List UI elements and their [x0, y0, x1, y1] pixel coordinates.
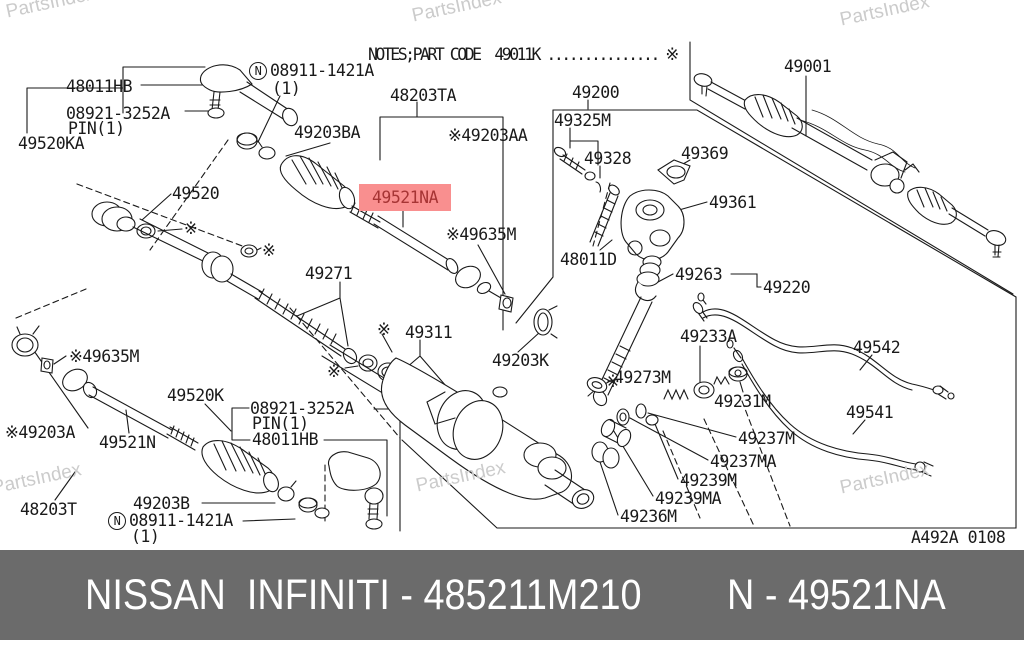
part-label-49239ma: 49239MA [655, 490, 721, 508]
part-label-49220: 49220 [763, 279, 810, 297]
part-label-49263: 49263 [675, 266, 722, 284]
part-label-49271: 49271 [305, 265, 352, 283]
part-label-49233a: 49233A [680, 328, 737, 346]
part-label-49520: 49520 [172, 185, 219, 203]
part-label-49273m: 49273M [614, 369, 671, 387]
part-label-text: 08911-1421A [270, 61, 374, 80]
part-label-49203a: ※49203A [5, 424, 75, 442]
asterisk-mark: ※ [606, 373, 619, 391]
part-label-48011d: 48011D [560, 251, 617, 269]
part-label-49369: 49369 [681, 145, 728, 163]
part-label-49328: 49328 [584, 150, 631, 168]
part-label-08911-1421a: N08911-1421A [249, 62, 374, 80]
part-label-49231m: 49231M [714, 393, 771, 411]
asterisk-mark: ※ [377, 321, 390, 339]
asterisk-mark: ※ [262, 242, 275, 260]
part-label-08911-1421a-lower: N08911-1421A [108, 512, 233, 530]
footer-bar: NISSAN INFINITI - 485211M210 N - 49521NA [0, 550, 1024, 640]
highlighted-part-label-49521na: 49521NA [359, 184, 451, 211]
part-label-49325m: 49325M [554, 112, 611, 130]
circled-n-icon: N [249, 62, 267, 80]
notes-text: NOTES;PART CODE 49011K ............... ※ [368, 46, 677, 64]
part-label-49521n: 49521N [99, 434, 156, 452]
part-label-49635m-lower: ※49635M [69, 348, 139, 366]
part-label-49236m: 49236M [620, 508, 677, 526]
part-label-48011hb-lower: 48011HB [252, 431, 318, 449]
part-label-49361: 49361 [709, 194, 756, 212]
part-label-49239m: 49239M [680, 472, 737, 490]
part-label-49542: 49542 [853, 339, 900, 357]
part-label-49203ba: 49203BA [294, 124, 360, 142]
part-label-49520ka: 49520KA [18, 135, 84, 153]
part-label-49001: 49001 [784, 58, 831, 76]
part-label-qty1-lower: (1) [131, 528, 159, 546]
part-label-48011hb: 48011HB [66, 78, 132, 96]
part-label-49635m-upper: ※49635M [446, 226, 516, 244]
steering-gear-assembly-drawing [693, 72, 1008, 257]
footer-oem-part-code: N - 49521NA [727, 550, 946, 640]
part-label-49203k: 49203K [492, 352, 549, 370]
inner-tie-rod-highlighted-drawing [350, 203, 557, 338]
part-label-49311: 49311 [405, 324, 452, 342]
part-label-48203ta: 48203TA [390, 87, 456, 105]
part-label-qty1: (1) [272, 80, 300, 98]
part-label-49237ma: 49237MA [710, 453, 776, 471]
circled-n-icon: N [108, 512, 126, 530]
footer-brand-part-number: NISSAN INFINITI - 485211M210 [85, 550, 642, 640]
diagram-reference-code: A492A 0108 [911, 529, 1005, 547]
parts-catalog-page: PartsIndex PartsIndex PartsIndex PartsIn… [0, 0, 1024, 648]
part-label-49200: 49200 [572, 84, 619, 102]
part-label-49541: 49541 [846, 404, 893, 422]
asterisk-mark: ※ [184, 220, 197, 238]
hydraulic-pipes-drawing [691, 293, 954, 476]
asterisk-mark: ※ [327, 363, 340, 381]
part-label-49203aa: ※49203AA [448, 127, 527, 145]
part-label-48203t: 48203T [20, 501, 77, 519]
part-label-49237m: 49237M [738, 430, 795, 448]
part-label-49520k: 49520K [167, 387, 224, 405]
